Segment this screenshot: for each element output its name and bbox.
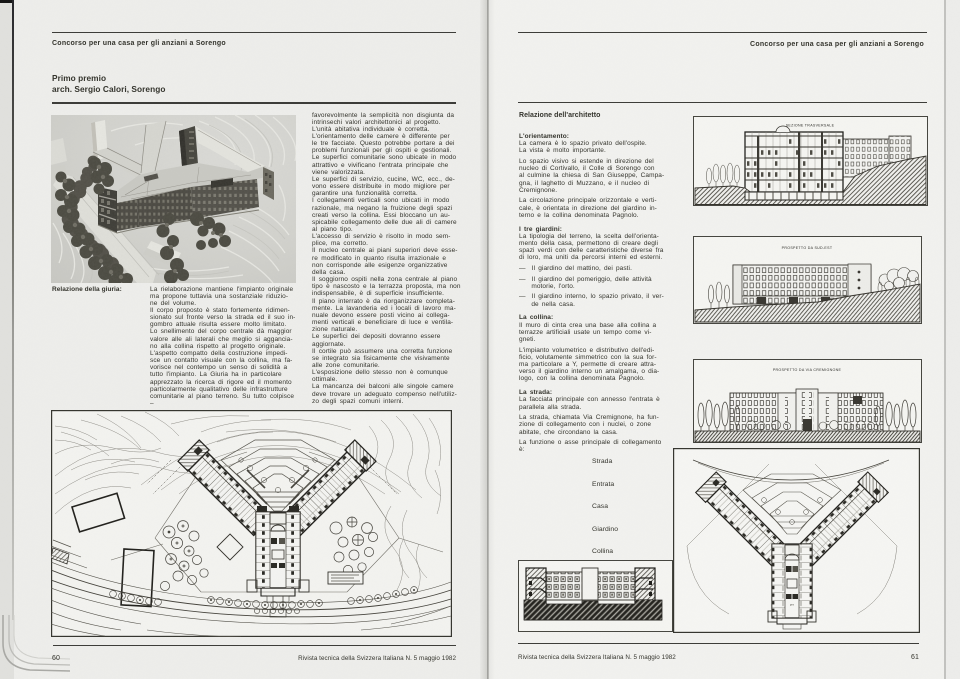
svg-text:SEZIONE TRASVERSALE: SEZIONE TRASVERSALE (786, 124, 835, 128)
svg-text:PROSPETTO DA SUD-EST: PROSPETTO DA SUD-EST (782, 246, 833, 250)
svg-text:PT: PT (790, 603, 794, 607)
svg-text:PROSPETTO DA VIA CREMIGNONE: PROSPETTO DA VIA CREMIGNONE (773, 368, 842, 372)
